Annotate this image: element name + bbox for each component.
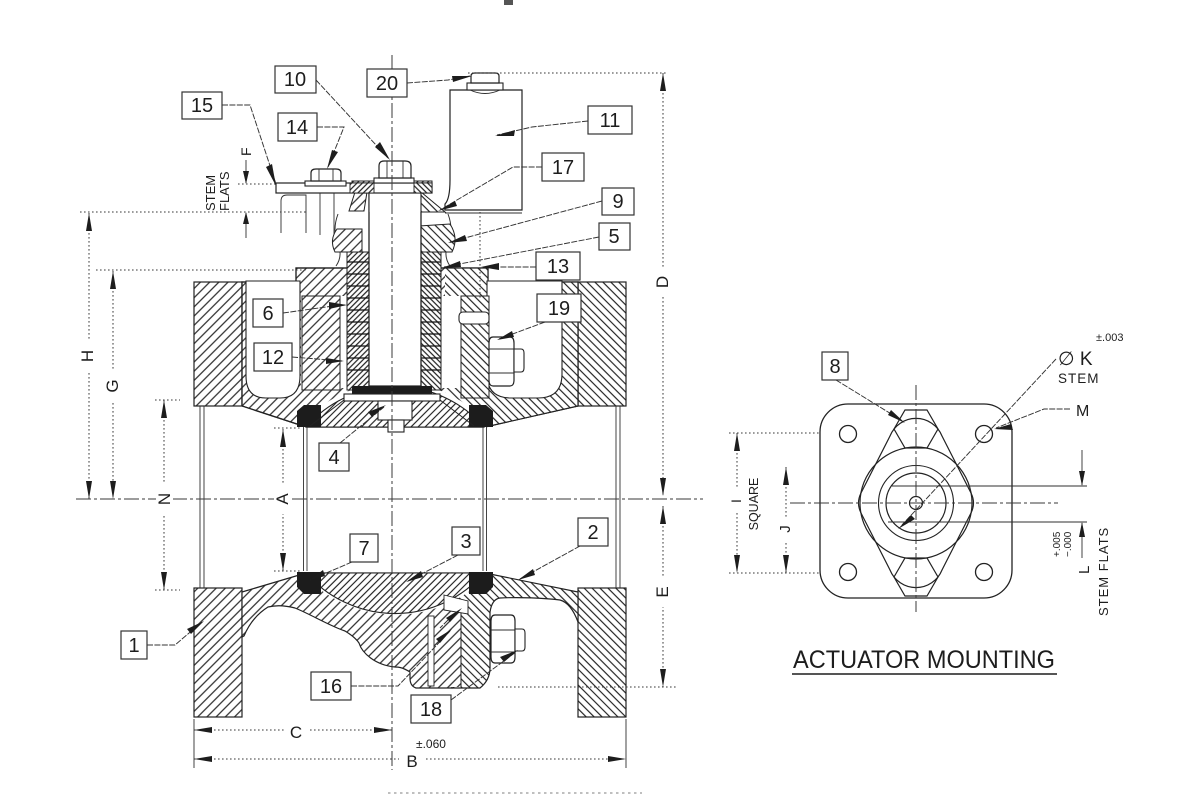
svg-text:STEM FLATS: STEM FLATS: [1096, 527, 1111, 616]
svg-text:G: G: [103, 379, 122, 392]
svg-text:A: A: [273, 493, 292, 505]
svg-text:6: 6: [262, 303, 273, 325]
svg-text:20: 20: [376, 73, 398, 95]
svg-text:14: 14: [286, 117, 308, 139]
svg-text:17: 17: [552, 157, 574, 179]
svg-text:18: 18: [420, 699, 442, 721]
svg-text:4: 4: [328, 447, 339, 469]
svg-text:I: I: [728, 499, 744, 503]
svg-text:J: J: [777, 525, 794, 533]
svg-text:2: 2: [587, 522, 598, 544]
svg-text:11: 11: [600, 110, 621, 132]
svg-text:STEM: STEM: [1058, 371, 1100, 386]
svg-text:15: 15: [191, 95, 213, 117]
svg-text:19: 19: [548, 298, 570, 320]
svg-text:ACTUATOR MOUNTING: ACTUATOR MOUNTING: [793, 646, 1055, 674]
svg-text:16: 16: [320, 676, 342, 698]
svg-text:L: L: [1076, 566, 1093, 574]
svg-text:F: F: [238, 147, 254, 156]
svg-text:−.000: −.000: [1063, 531, 1074, 557]
svg-text:N: N: [155, 493, 174, 505]
svg-text:1: 1: [128, 635, 139, 657]
svg-text:M: M: [1076, 403, 1089, 420]
svg-text:∅ K: ∅ K: [1058, 349, 1093, 370]
svg-text:E: E: [653, 586, 672, 597]
svg-text:9: 9: [612, 191, 623, 213]
svg-text:SQUARE: SQUARE: [747, 478, 761, 531]
svg-text:±.060: ±.060: [416, 737, 446, 751]
svg-text:12: 12: [262, 347, 284, 369]
svg-text:10: 10: [284, 69, 306, 91]
svg-text:FLATS: FLATS: [217, 171, 232, 211]
svg-text:D: D: [653, 276, 672, 288]
svg-text:STEM: STEM: [203, 175, 218, 211]
svg-text:13: 13: [547, 256, 569, 278]
svg-text:+.005: +.005: [1052, 531, 1063, 557]
svg-text:8: 8: [829, 356, 840, 378]
svg-text:3: 3: [460, 531, 471, 553]
svg-text:C: C: [290, 723, 302, 742]
svg-text:±.003: ±.003: [1096, 332, 1123, 344]
svg-text:7: 7: [358, 538, 369, 560]
svg-text:H: H: [78, 350, 97, 362]
svg-text:B: B: [406, 752, 417, 771]
svg-text:5: 5: [608, 226, 619, 248]
